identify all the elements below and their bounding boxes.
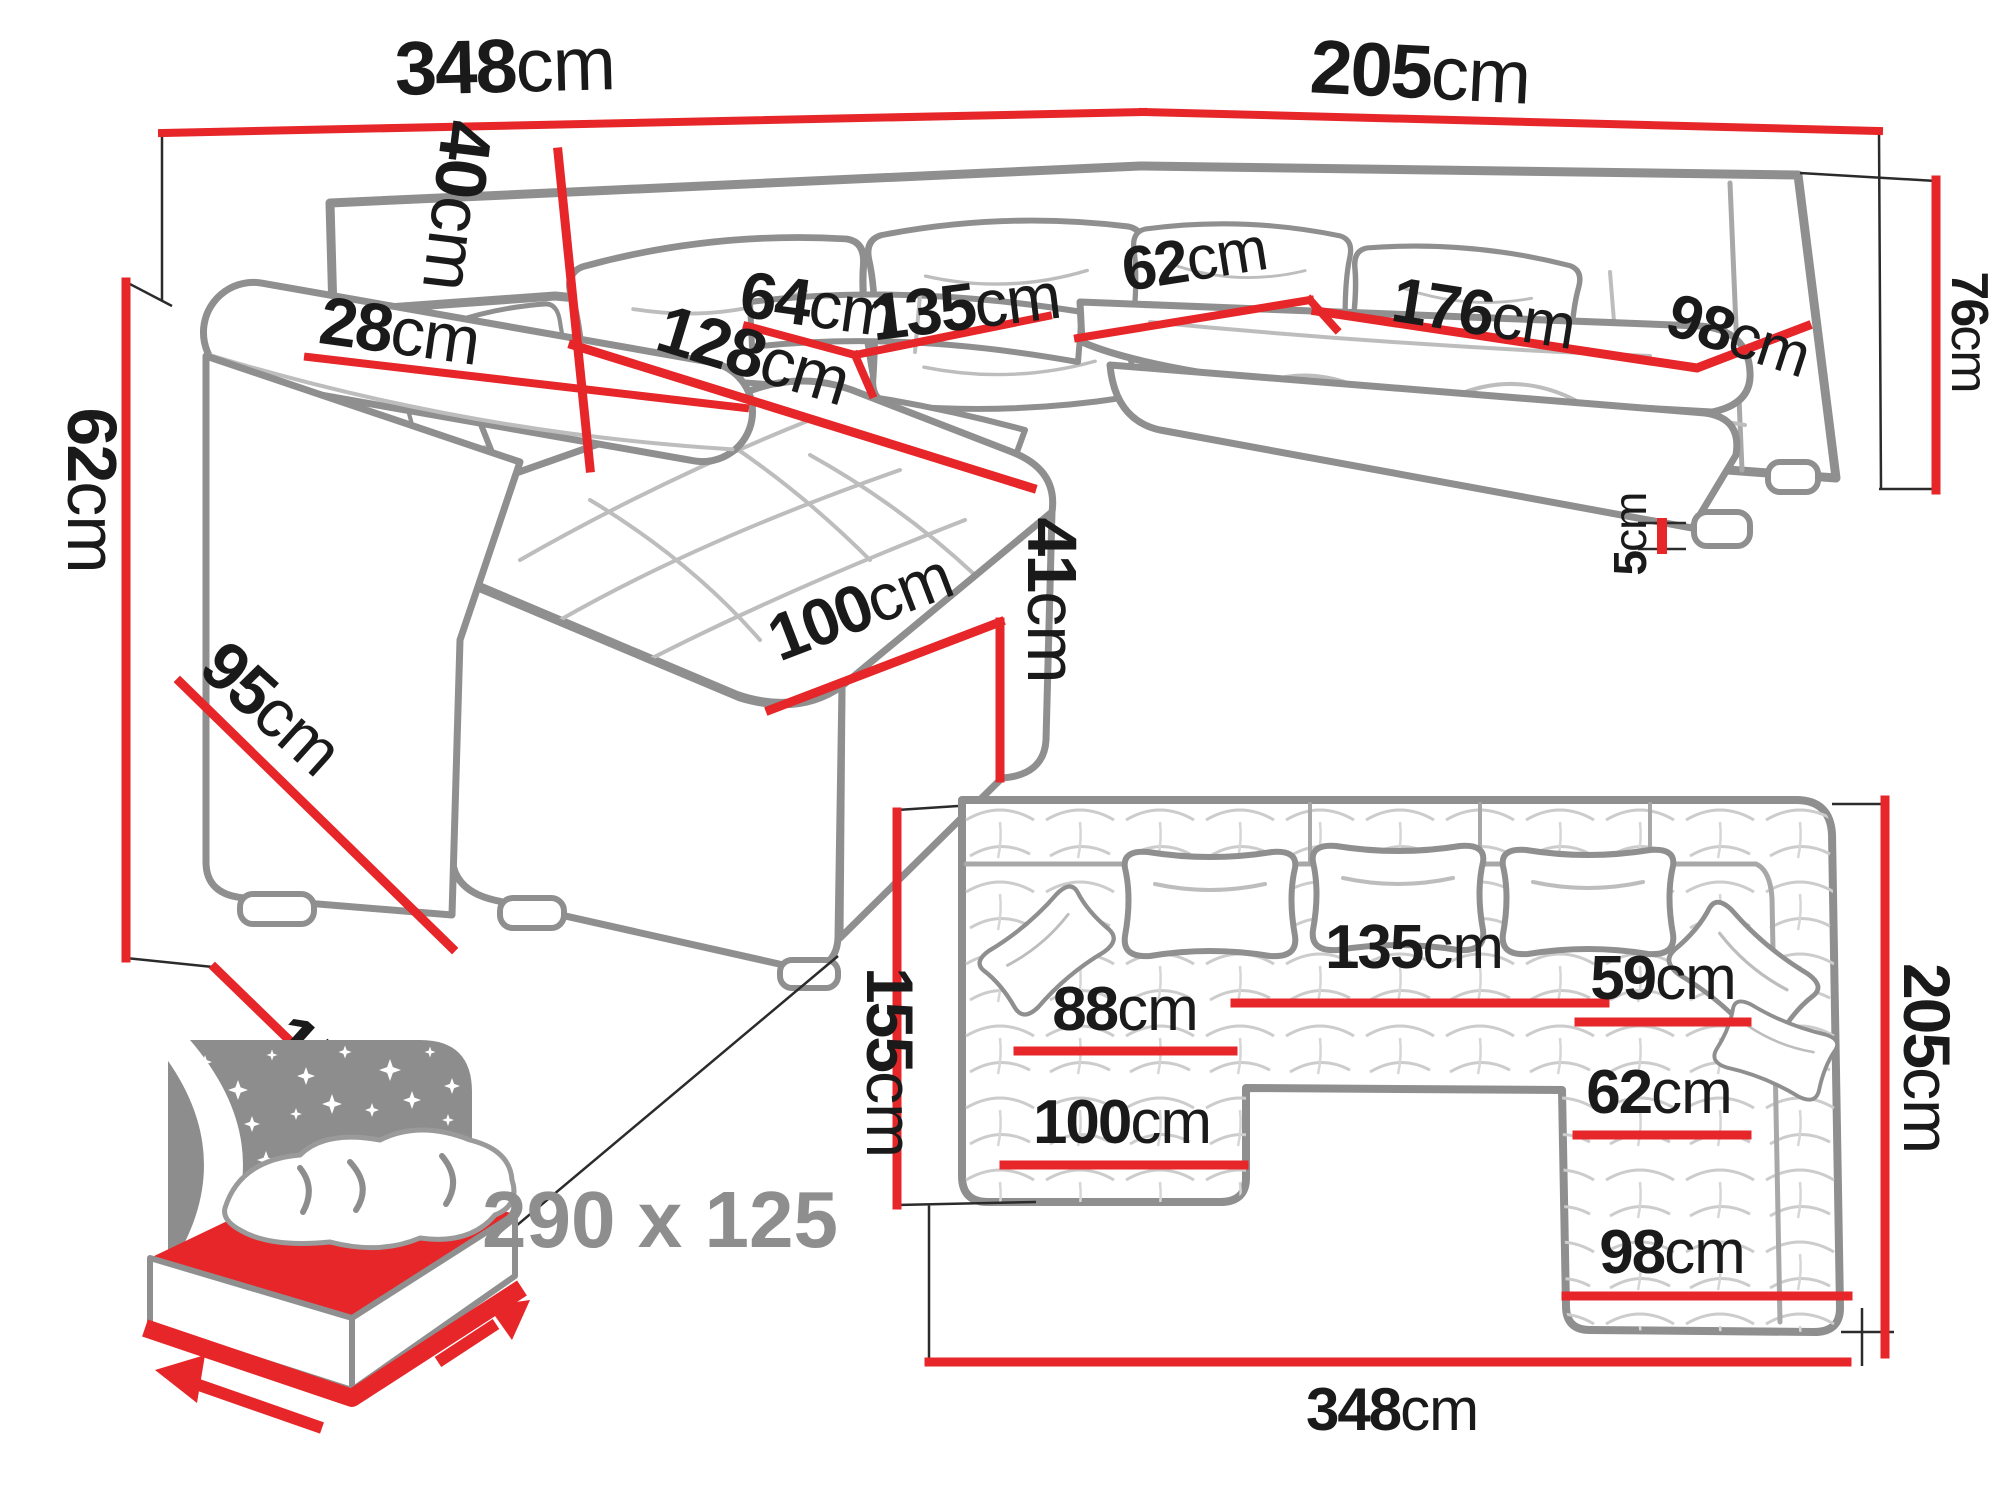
dim-label-side-depth: 205cm — [1308, 24, 1532, 120]
dim-label-arm-height: 62cm — [53, 407, 131, 572]
plan-label-chaise-depth: 155cm — [853, 967, 927, 1157]
furniture-dimension-diagram: 348cm 205cm 62cm 95cm 155cm 28cm 40cm 64… — [0, 0, 2000, 1500]
unfold-arrow-left-head — [155, 1355, 205, 1403]
sofa-foot — [240, 894, 314, 924]
plan-label-chaise-inner-length: 88cm — [1052, 975, 1198, 1044]
sofa-foot — [500, 898, 564, 928]
dim-label-seat-height: 41cm — [1013, 517, 1091, 682]
dim-label-back-width: 348cm — [394, 21, 616, 112]
sleeping-function: 290 x 125 — [145, 1040, 838, 1428]
plan-label-center-seat-width: 135cm — [1325, 913, 1503, 982]
plan-pillow — [1125, 852, 1296, 956]
unfold-arrow-right-head — [488, 1300, 530, 1340]
plan-label-total-depth: 205cm — [1890, 963, 1964, 1153]
dim-label-leg-height: 5cm — [1604, 493, 1656, 576]
plan-pillow — [1503, 850, 1674, 954]
dim-label-backrest-height: 76cm — [1940, 271, 1998, 392]
plan-label-right-inner-top: 59cm — [1590, 944, 1736, 1013]
sofa-foot — [1694, 512, 1750, 546]
plan-label-chaise-width: 100cm — [1033, 1088, 1211, 1157]
dim-line-back-width — [162, 112, 1143, 133]
sleeping-size-label: 290 x 125 — [482, 1175, 838, 1264]
plan-view: 155cm 205cm 135cm 88cm 59cm 62cm 100cm 9… — [853, 800, 1964, 1443]
plan-label-right-inner: 62cm — [1586, 1058, 1732, 1127]
bed-with-stars-icon — [145, 1040, 530, 1428]
plan-label-total-width: 348cm — [1306, 1376, 1478, 1443]
sofa-foot — [1768, 462, 1818, 492]
plan-label-right-bottom: 98cm — [1599, 1218, 1745, 1287]
